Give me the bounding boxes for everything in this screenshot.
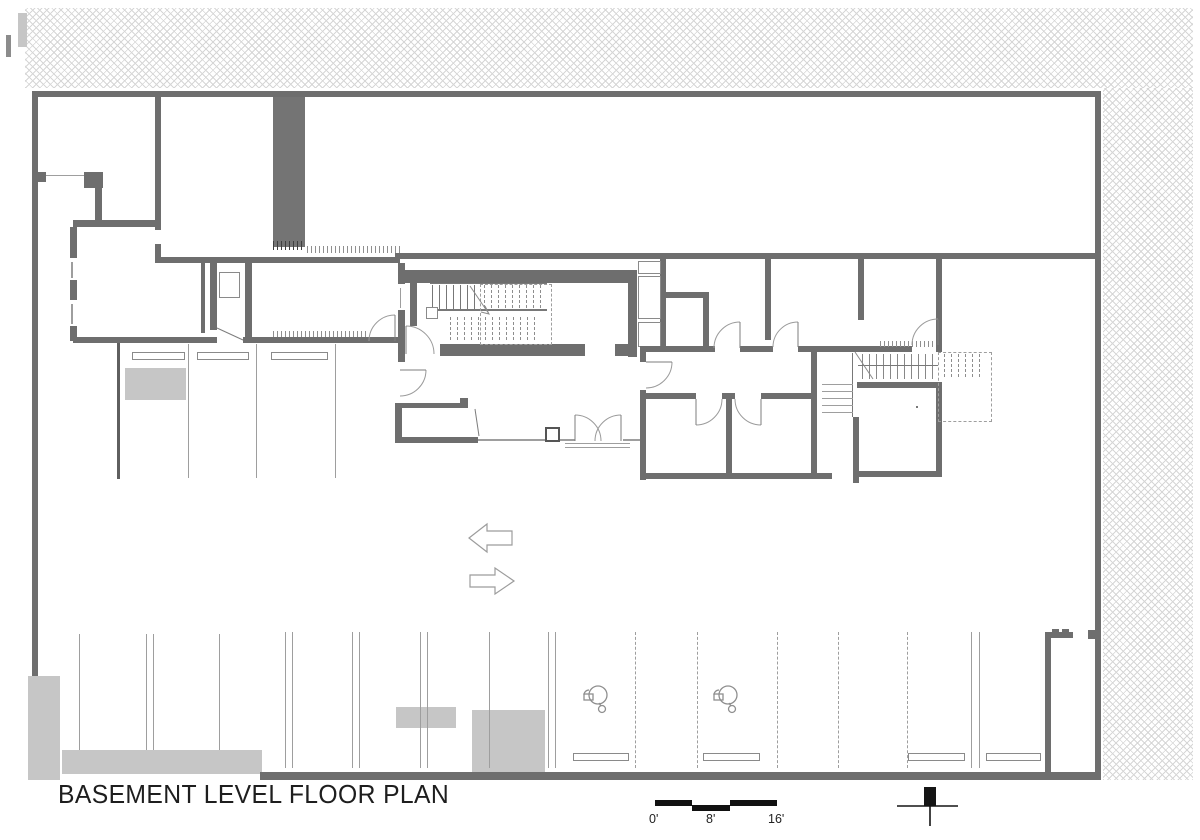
wall [440, 344, 585, 356]
tick-strip [307, 246, 402, 253]
arrow-left-icon [469, 524, 512, 552]
wall [740, 346, 773, 352]
column [545, 427, 560, 442]
wall [84, 172, 103, 188]
wall [32, 172, 46, 182]
thin-line [46, 175, 84, 176]
wall [811, 352, 817, 479]
wall [395, 253, 1101, 259]
thin-line [219, 634, 220, 750]
wall [73, 337, 217, 343]
drawing-title: BASEMENT LEVEL FLOOR PLAN [58, 779, 449, 810]
wall [1052, 629, 1059, 638]
stair-a-treads [432, 285, 480, 310]
concrete-fill [125, 368, 186, 400]
site-marker [18, 13, 27, 47]
wall [70, 280, 77, 300]
thin-line [146, 634, 147, 750]
thin-line [153, 634, 154, 750]
fixture-outline [703, 753, 760, 761]
north-marker-icon [897, 787, 958, 826]
drive-aisle-arrows [469, 524, 514, 594]
elevator-dashed-outline [938, 352, 992, 422]
wheel-stop [132, 352, 185, 360]
thin-line [79, 634, 80, 750]
fixture-outline [638, 322, 661, 347]
arrow-right-icon [470, 568, 514, 594]
dashed-stall-line [907, 632, 908, 768]
page-edge-tick [6, 35, 11, 57]
wall [398, 310, 405, 362]
thin-line [400, 288, 401, 308]
stair-a-upper-flight-dashed [480, 284, 552, 345]
stair-b-treads [862, 354, 936, 379]
scale-bar-segment [730, 800, 777, 806]
wall [857, 382, 942, 388]
wall [858, 259, 864, 320]
floor-plan-sheet: 0' 8' 16' BASEMENT LEVEL FLOOR PLAN [0, 0, 1200, 840]
fixture-outline [197, 352, 249, 360]
dark-line [916, 406, 918, 408]
wall [397, 437, 478, 443]
outer-wall-top [32, 91, 1101, 97]
dark-line [852, 353, 853, 417]
thin-line [420, 632, 421, 768]
thin-line [478, 439, 575, 441]
thin-line [292, 632, 293, 768]
thin-line [822, 391, 853, 392]
wall [1088, 630, 1095, 639]
wall [936, 259, 942, 352]
parking-stall-line [188, 344, 189, 478]
scale-label-8: 8' [706, 812, 715, 826]
wall [761, 393, 817, 399]
fixture-outline [638, 261, 661, 274]
thin-line [822, 405, 853, 406]
dashed-stall-line [635, 632, 636, 768]
thin-line [285, 632, 286, 768]
wall [397, 403, 468, 408]
thin-line [427, 632, 428, 768]
wall [853, 471, 942, 477]
thin-line [822, 412, 853, 413]
wall [245, 257, 252, 343]
site-hatch-right [1103, 88, 1193, 780]
tick-strip [273, 331, 366, 337]
wall [73, 220, 157, 227]
wall [155, 97, 161, 230]
concrete-fill [62, 750, 262, 774]
wall [70, 227, 77, 258]
scale-label-16: 16' [768, 812, 784, 826]
thin-line [489, 632, 490, 768]
wall [703, 292, 709, 352]
fixture-outline [986, 753, 1041, 761]
thin-line [359, 632, 360, 768]
outer-wall-right [1095, 91, 1101, 780]
motorcycle-icon [584, 686, 607, 713]
wall [1045, 633, 1051, 774]
wall [640, 352, 646, 362]
thin-line [971, 632, 972, 768]
wall [640, 473, 832, 479]
thin-line [71, 262, 73, 278]
wall [628, 270, 637, 357]
fixture-outline [426, 307, 438, 319]
dashed-stall-line [777, 632, 778, 768]
thin-line [352, 632, 353, 768]
wall [640, 390, 646, 480]
tick-strip-dark [273, 241, 305, 250]
wall [155, 257, 400, 263]
wall [640, 346, 715, 352]
concrete-fill [396, 707, 456, 728]
scale-label-0: 0' [649, 812, 658, 826]
dashed-stall-line [838, 632, 839, 768]
thin-line [822, 384, 853, 385]
wall [201, 257, 205, 333]
wall [210, 257, 217, 330]
wall [117, 343, 120, 479]
wall [726, 399, 732, 479]
fixture-outline [573, 753, 629, 761]
wall [640, 393, 696, 399]
shaft [273, 97, 305, 247]
thin-line [565, 447, 630, 448]
duct-chase [219, 272, 240, 298]
wall [765, 259, 771, 340]
thin-line [979, 632, 980, 768]
wall [400, 270, 633, 283]
scale-bar-segment [655, 800, 692, 806]
scale-bar-segment [692, 805, 730, 811]
outer-wall-left [32, 97, 38, 676]
wall [410, 283, 417, 326]
fixture-outline [638, 276, 661, 319]
wall [460, 398, 468, 408]
thin-line [548, 632, 549, 768]
thin-line [335, 344, 336, 478]
thin-line [256, 344, 257, 478]
concrete-fill [28, 676, 60, 780]
fixture-outline [908, 753, 965, 761]
thin-line [822, 398, 853, 399]
dark-line [858, 365, 938, 366]
motorcycle-icon [714, 686, 737, 713]
dashed-stall-line [697, 632, 698, 768]
symbol-overlay [0, 0, 1200, 840]
fixture-outline [271, 352, 328, 360]
thin-line [555, 632, 556, 768]
wall [1062, 629, 1069, 638]
concrete-fill [472, 710, 545, 778]
tick-strip [880, 341, 936, 347]
thin-line [71, 304, 73, 324]
site-hatch-top [25, 8, 1193, 88]
wall [662, 292, 709, 298]
wall [243, 337, 398, 343]
thin-line [565, 443, 630, 444]
